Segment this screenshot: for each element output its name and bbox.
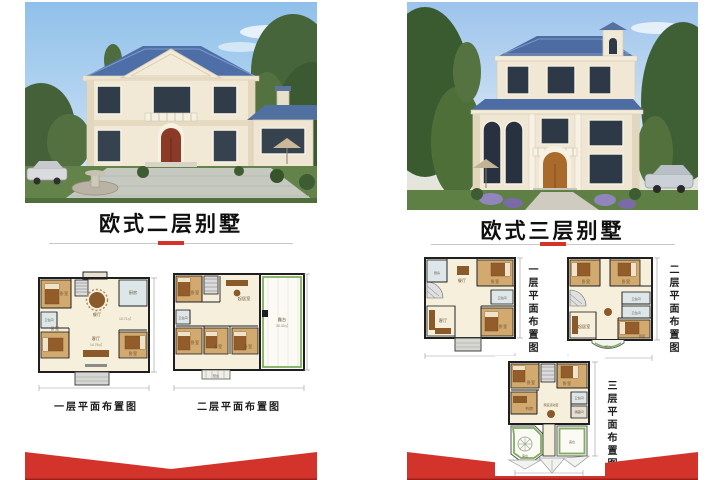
divider-red-mark <box>158 241 184 245</box>
floor-plan-right-2f: 卧室 卧室 卫生间 卫生间 卧室 起居室 阳台 <box>562 250 662 362</box>
room-label: 卧室 <box>622 278 630 285</box>
room-label: 露台 <box>522 453 528 458</box>
room-label: 卧室 <box>582 278 590 285</box>
plan-caption-2f: 二层平面布置图 <box>168 398 310 413</box>
villa-photo-two-story <box>25 2 317 203</box>
sofa <box>429 310 435 330</box>
desk <box>513 396 527 403</box>
room-label: 卫生间 <box>44 317 53 322</box>
room-label: 卫生间 <box>178 315 187 320</box>
room-label: 卧室 <box>499 323 507 330</box>
room-label: 卧室 <box>191 289 199 296</box>
room-label: 客厅 <box>92 335 100 342</box>
room-label: 卫生间 <box>497 295 506 300</box>
entry-porch <box>75 372 109 385</box>
room-label: 卧室 <box>191 339 199 346</box>
room-label: 卫生间 <box>631 310 640 315</box>
room-label: 露台 <box>278 316 286 323</box>
floor-plan-left-1f: 卧室 卧室 卧室 厨房 卫生间 餐厅 客厅 14.76㎡ 10.71㎡ <box>33 268 159 394</box>
room-label: 卧室 <box>51 325 59 332</box>
plan-caption-1f: 一层平面布置图 <box>524 264 539 355</box>
dining-table <box>457 266 469 275</box>
room-label: 起居室 <box>578 323 591 330</box>
room-area: 10.71㎡ <box>119 316 131 321</box>
sofa <box>83 350 109 357</box>
panel-title: 欧式二层别墅 <box>25 208 317 238</box>
room-label: 客厅 <box>439 317 447 324</box>
room-label: 卫生间 <box>631 296 640 301</box>
plan-caption-1f: 一层平面布置图 <box>33 398 159 413</box>
sofa <box>226 280 248 286</box>
room-label: 阳台 <box>605 344 611 349</box>
room-area: 30.33㎡ <box>276 323 288 328</box>
room-area: 14.76㎡ <box>90 342 102 347</box>
floor-plan-right-1f: 厨房 餐厅 卧室 卫生间 卧室 客厅 <box>419 250 531 360</box>
room-label: 卧室 <box>244 343 252 350</box>
panel-three-story-villa: 欧式三层别墅 厨房 餐厅 卧室 卫生间 卧室 客厅 <box>407 0 698 480</box>
floor-plan-right-3f: 卧室 卧室 书房 家庭活动室 卫生间 储藏间 露台 露台 <box>495 356 605 476</box>
room-label: 卧室 <box>129 350 137 357</box>
room-label: 卧室 <box>214 343 222 350</box>
stairs <box>541 364 555 382</box>
brochure-page: { "colors": { "accent_red": "#d2342c", "… <box>0 0 720 480</box>
room-label: 厨房 <box>434 270 440 275</box>
room-label: 阳台 <box>213 373 219 378</box>
dining-table <box>89 292 105 308</box>
room-label: 书房 <box>525 405 533 412</box>
panel-title: 欧式三层别墅 <box>407 215 698 245</box>
title-divider <box>49 241 293 246</box>
stairs <box>204 276 218 294</box>
room-label: 卧室 <box>491 278 499 285</box>
room-label: 起居室 <box>238 295 251 302</box>
table <box>604 308 612 316</box>
panel-two-story-villa: 欧式二层别墅 卧室 卧室 卧室 厨房 卫生间 餐厅 客厅 <box>25 0 317 480</box>
room-label: 厨房 <box>129 289 137 296</box>
entry-porch <box>455 338 481 351</box>
stairs <box>75 280 88 296</box>
red-ribbon <box>25 452 317 480</box>
plan-caption-2f: 二层平面布置图 <box>665 264 680 355</box>
villa-photo-three-story <box>407 2 698 210</box>
divider-red-mark <box>540 242 566 246</box>
room-label: 卧室 <box>60 290 68 297</box>
floor-plan-left-2f: 卧室 卧室 卧室 卧室 起居室 卫生间 露台 30.33㎡ 阳台 <box>168 264 310 396</box>
table <box>547 410 555 418</box>
room-label: 卧室 <box>639 333 645 338</box>
room-label: 卧室 <box>563 380 571 387</box>
title-divider <box>431 242 675 247</box>
room-label: 餐厅 <box>93 311 101 318</box>
room-label: 储藏间 <box>574 409 583 414</box>
room-label: 卫生间 <box>574 395 583 400</box>
room-label: 餐厅 <box>458 277 466 284</box>
room-label: 卧室 <box>527 379 535 386</box>
room-label: 家庭活动室 <box>543 402 558 407</box>
room-label: 露台 <box>569 439 575 444</box>
